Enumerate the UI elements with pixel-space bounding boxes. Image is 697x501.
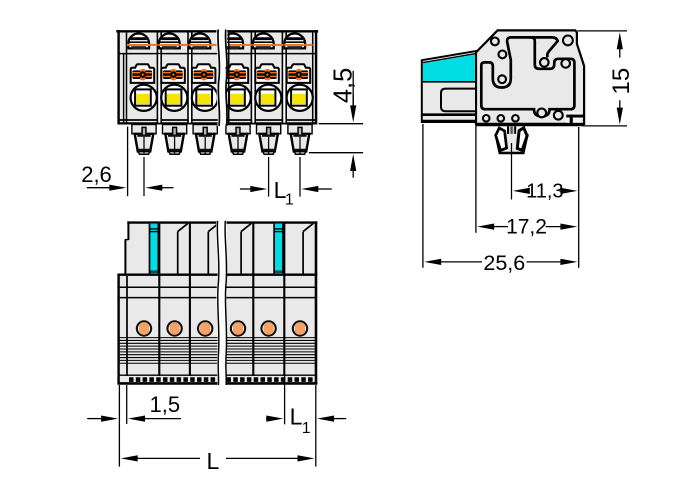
- svg-text:17,2: 17,2: [506, 215, 547, 238]
- svg-text:15: 15: [608, 68, 635, 95]
- svg-text:L: L: [207, 448, 220, 474]
- svg-text:1: 1: [302, 420, 311, 437]
- svg-text:1: 1: [285, 191, 294, 208]
- svg-text:1,5: 1,5: [150, 392, 181, 417]
- svg-text:2,6: 2,6: [81, 162, 112, 187]
- svg-text:L: L: [290, 403, 303, 429]
- svg-text:4,5: 4,5: [329, 68, 357, 103]
- svg-text:25,6: 25,6: [483, 251, 525, 275]
- svg-text:11,3: 11,3: [526, 180, 563, 202]
